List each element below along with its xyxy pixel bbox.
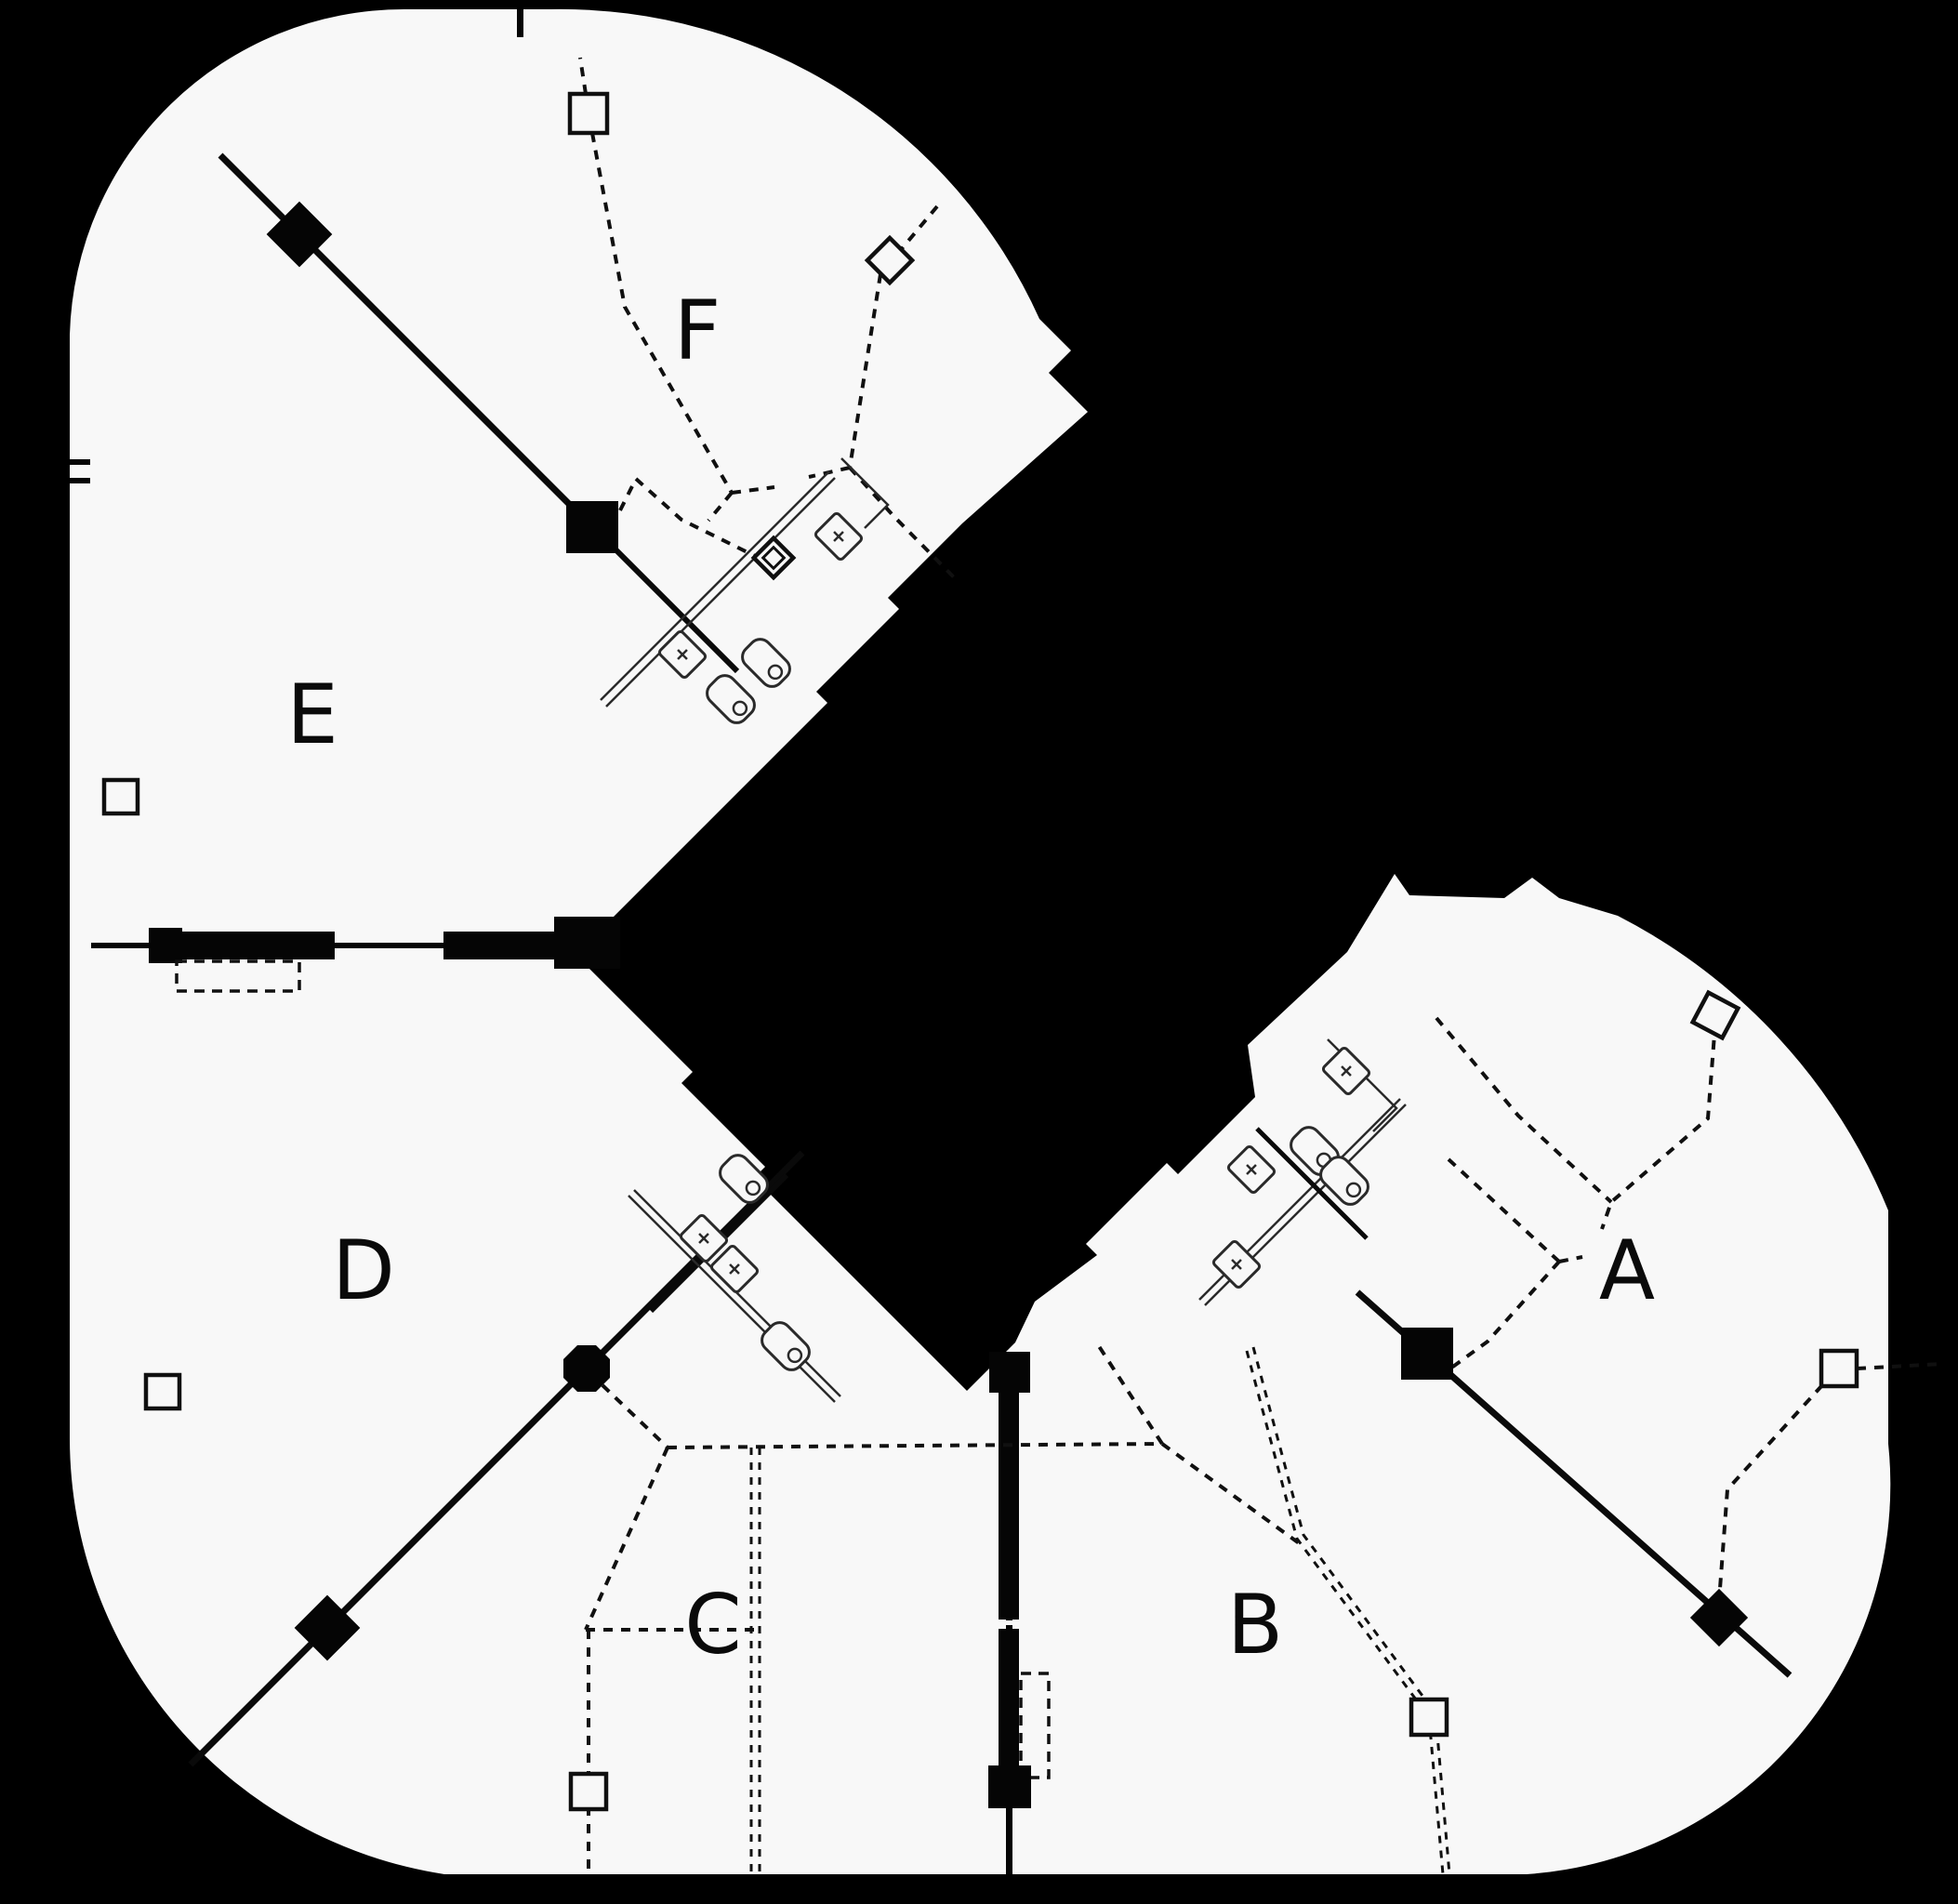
zone-label-b: B (1227, 1577, 1283, 1673)
floor-plan-page: A B C D E F (0, 0, 1958, 1904)
square-node-bc-bottom (988, 1765, 1031, 1808)
wall-b-c-thick2 (999, 1629, 1019, 1766)
zone-label-e: E (286, 667, 338, 762)
wall-e-d-thick2 (443, 932, 576, 959)
square-node-ef (566, 501, 618, 553)
wall-tick (517, 9, 523, 37)
column-marker-f (570, 94, 607, 133)
wall-tick (70, 459, 90, 465)
wall-tick (70, 478, 90, 483)
column-marker-e (104, 780, 138, 813)
column-marker-c (571, 1774, 606, 1809)
column-marker-b (1411, 1699, 1447, 1735)
zone-label-c: C (684, 1577, 741, 1673)
square-node-bc-top (989, 1352, 1030, 1393)
column-marker-d (146, 1375, 179, 1408)
wall-e-d-thick1 (152, 932, 335, 959)
zone-label-f: F (674, 283, 721, 378)
octagon-node-cd (563, 1345, 610, 1392)
zone-label-a: A (1599, 1223, 1655, 1318)
wall-gap (999, 1620, 1019, 1625)
square-node-ab (1401, 1328, 1453, 1380)
wall-b-c-thick1 (999, 1392, 1019, 1620)
column-marker-a (1821, 1351, 1857, 1386)
floor-plan-svg: A B C D E F (0, 0, 1958, 1904)
zone-label-d: D (332, 1223, 395, 1318)
